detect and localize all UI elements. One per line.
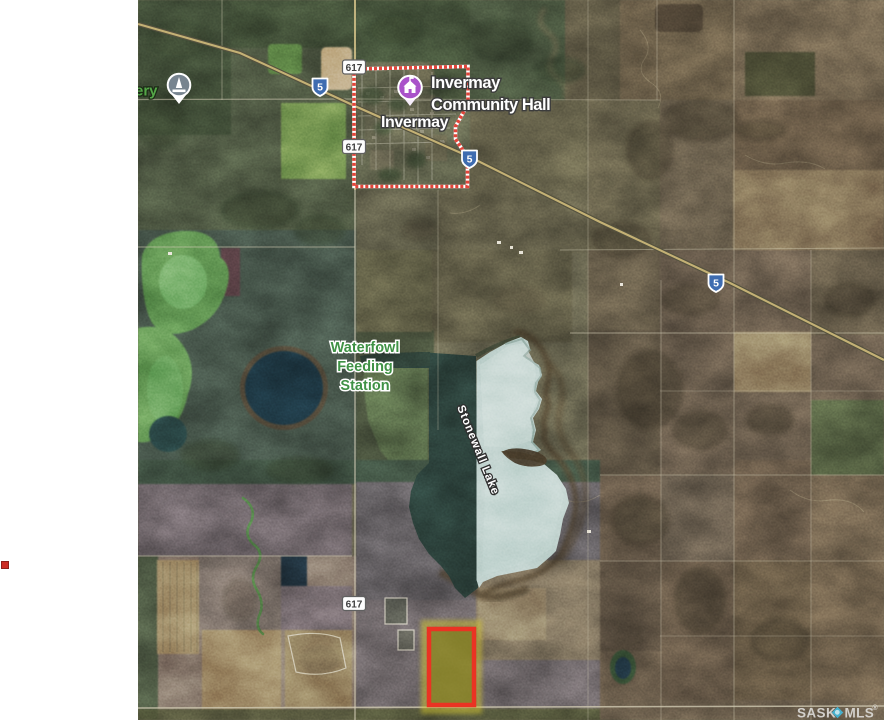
- svg-text:5: 5: [713, 278, 719, 290]
- svg-text:617: 617: [346, 143, 363, 154]
- svg-text:SASK: SASK: [797, 706, 836, 720]
- svg-text:®: ®: [873, 704, 879, 712]
- svg-text:ery: ery: [138, 83, 158, 100]
- svg-text:Invermay: Invermay: [431, 74, 501, 92]
- svg-text:Community Hall: Community Hall: [431, 96, 550, 114]
- svg-text:MLS: MLS: [845, 706, 875, 720]
- svg-text:Feeding: Feeding: [337, 359, 393, 375]
- svg-text:617: 617: [346, 600, 363, 611]
- svg-text:Waterfowl: Waterfowl: [331, 340, 400, 356]
- svg-text:5: 5: [317, 82, 323, 94]
- svg-text:Invermay: Invermay: [381, 114, 449, 131]
- svg-text:617: 617: [346, 63, 363, 74]
- svg-text:5: 5: [467, 154, 473, 166]
- svg-text:Station: Station: [340, 378, 389, 394]
